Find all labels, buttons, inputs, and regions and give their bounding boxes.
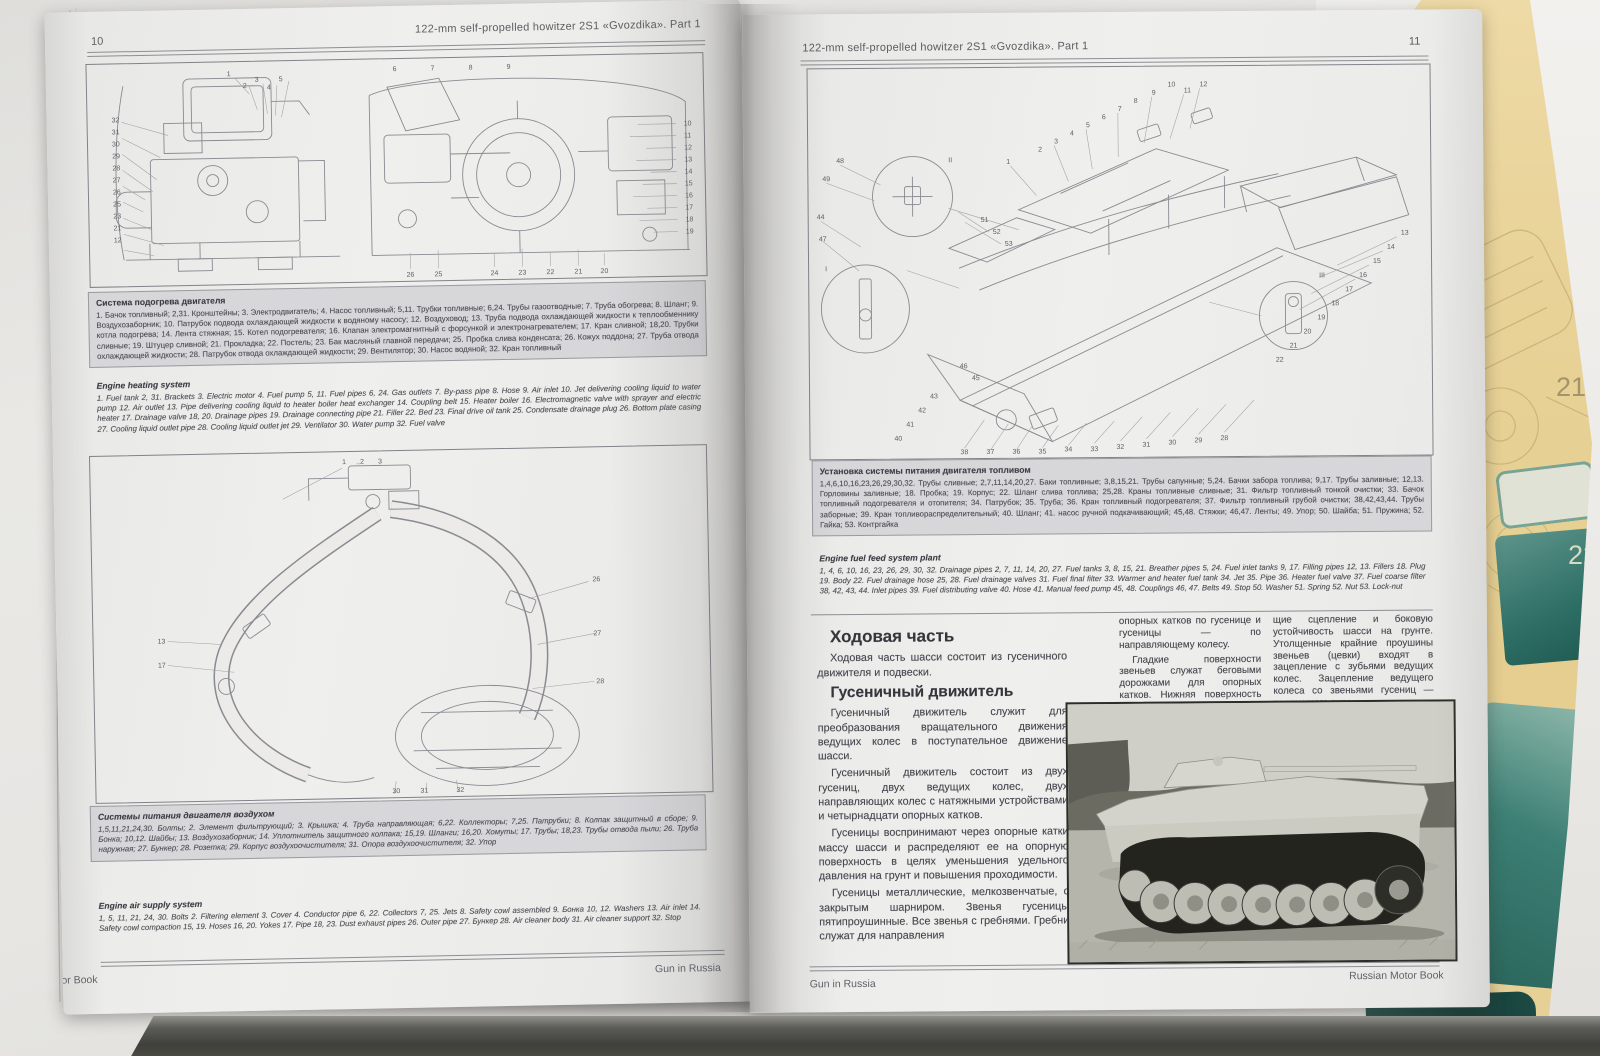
svg-text:34: 34 xyxy=(1064,446,1072,453)
svg-text:31: 31 xyxy=(420,788,428,795)
callout-number-layer: 303132 xyxy=(392,787,464,795)
caption-heating-en: Engine heating system 1. Fuel tank 2, 31… xyxy=(89,364,708,440)
caption-air-en: Engine air supply system 1, 5, 11, 21, 2… xyxy=(91,884,708,939)
svg-text:43: 43 xyxy=(930,393,938,400)
svg-text:36: 36 xyxy=(1013,449,1021,456)
callout-number-layer: 262728 xyxy=(592,576,604,685)
svg-text:23: 23 xyxy=(518,270,526,277)
svg-text:18: 18 xyxy=(1331,300,1339,307)
callout-number-layer: 121110987654321 xyxy=(1006,81,1209,166)
right-page-header-title: 122-mm self-propelled howitzer 2S1 «Gvoz… xyxy=(802,40,1088,54)
svg-text:15: 15 xyxy=(1373,258,1381,265)
svg-text:45: 45 xyxy=(972,375,980,382)
svg-text:12: 12 xyxy=(684,144,692,151)
paragraph: Гусеничный движитель состоит из двух гус… xyxy=(818,765,1068,824)
svg-text:2: 2 xyxy=(360,459,364,466)
svg-text:30: 30 xyxy=(392,788,400,795)
svg-text:14: 14 xyxy=(685,168,693,175)
svg-text:22: 22 xyxy=(1276,357,1284,364)
svg-text:1: 1 xyxy=(1006,159,1010,166)
svg-text:49: 49 xyxy=(822,176,830,183)
svg-text:2: 2 xyxy=(1038,147,1042,154)
svg-text:28: 28 xyxy=(596,678,604,685)
svg-text:17: 17 xyxy=(158,663,166,670)
left-footer-series: Gun in Russia xyxy=(655,962,721,975)
svg-text:46: 46 xyxy=(960,363,968,370)
caption-fuel-ru: Установка системы питания двигателя топл… xyxy=(812,456,1433,537)
callout-number-layer: 1317 xyxy=(157,639,165,670)
svg-text:18: 18 xyxy=(685,216,693,223)
left-page-header-title: 122-mm self-propelled howitzer 2S1 «Gvoz… xyxy=(415,18,701,35)
svg-text:29: 29 xyxy=(1194,437,1202,444)
left-page-number: 10 xyxy=(91,36,103,48)
svg-text:3: 3 xyxy=(255,77,259,84)
caption-fuel-en: Engine fuel feed system plant 1, 4, 6, 1… xyxy=(812,544,1432,602)
svg-text:26: 26 xyxy=(592,576,600,583)
paragraph: Гусеничный движитель служит для преобраз… xyxy=(818,705,1068,764)
section-title-running-gear: Ходовая часть xyxy=(817,624,1067,648)
svg-text:7: 7 xyxy=(431,65,435,72)
svg-text:20: 20 xyxy=(600,268,608,275)
caption-fuel-ru-body: 1,4,6,10,16,23,26,29,30,32. Трубы сливны… xyxy=(820,475,1424,529)
cover-artwork-light xyxy=(1495,460,1599,530)
svg-text:3: 3 xyxy=(378,458,382,465)
svg-text:26: 26 xyxy=(406,272,414,279)
svg-text:41: 41 xyxy=(906,422,914,429)
svg-text:16: 16 xyxy=(1359,272,1367,279)
svg-text:27: 27 xyxy=(593,630,601,637)
cover-figure-number-21: 21 xyxy=(1556,372,1586,403)
svg-text:13: 13 xyxy=(684,156,692,163)
callout-number-layer: 6789 xyxy=(393,64,511,73)
svg-text:4: 4 xyxy=(1070,130,1074,137)
callout-number-layer: 10111213141516171819 xyxy=(684,120,694,235)
svg-text:5: 5 xyxy=(279,76,283,83)
svg-text:12: 12 xyxy=(1200,81,1208,88)
callout-number-layer: 123 xyxy=(342,458,382,466)
svg-text:6: 6 xyxy=(1102,114,1106,121)
paragraph: опорных катков по гусенице и гусеницы — … xyxy=(1119,615,1261,652)
svg-text:31: 31 xyxy=(1142,442,1150,449)
svg-text:9: 9 xyxy=(1152,90,1156,97)
svg-text:21: 21 xyxy=(114,225,122,232)
svg-text:44: 44 xyxy=(817,214,825,221)
svg-text:48: 48 xyxy=(836,158,844,165)
svg-text:16: 16 xyxy=(685,192,693,199)
svg-text:13: 13 xyxy=(157,639,165,646)
right-page: 122-mm self-propelled howitzer 2S1 «Gvoz… xyxy=(742,9,1490,1013)
section-title-track-unit: Гусеничный движитель xyxy=(817,681,1067,703)
svg-text:21: 21 xyxy=(574,268,582,275)
svg-text:52: 52 xyxy=(993,229,1001,236)
paragraph: Гусеницы воспринимают через опорные катк… xyxy=(818,825,1068,884)
svg-text:32: 32 xyxy=(1116,444,1124,451)
svg-text:40: 40 xyxy=(894,436,902,443)
svg-text:25: 25 xyxy=(434,271,442,278)
right-footer-rule xyxy=(810,961,1440,971)
svg-text:32: 32 xyxy=(111,117,119,124)
howitzer-photo xyxy=(1066,699,1458,964)
svg-text:3: 3 xyxy=(1054,138,1058,145)
engine-heating-diagram: 12345 3231302928272625232112 6789 101112… xyxy=(85,52,707,288)
svg-text:32: 32 xyxy=(456,787,464,794)
svg-text:26: 26 xyxy=(113,189,121,196)
svg-text:7: 7 xyxy=(1118,106,1122,113)
svg-text:4: 4 xyxy=(267,84,271,91)
callout-number-layer: IIIIII xyxy=(824,154,1325,283)
svg-text:51: 51 xyxy=(981,217,989,224)
svg-text:25: 25 xyxy=(113,201,121,208)
paragraph: Ходовая часть шасси состоит из гусенично… xyxy=(817,650,1067,680)
svg-text:III: III xyxy=(1319,272,1325,279)
svg-text:37: 37 xyxy=(987,449,995,456)
svg-text:15: 15 xyxy=(685,180,693,187)
svg-text:23: 23 xyxy=(113,213,121,220)
svg-text:19: 19 xyxy=(686,228,694,235)
svg-text:13: 13 xyxy=(1401,230,1409,237)
svg-text:42: 42 xyxy=(918,407,926,414)
svg-text:11: 11 xyxy=(1184,87,1191,94)
svg-text:II: II xyxy=(948,157,952,164)
air-supply-diagram: 123 262728 1317 303132 xyxy=(89,444,714,804)
svg-text:5: 5 xyxy=(1086,122,1090,129)
svg-text:21: 21 xyxy=(1290,343,1298,350)
svg-text:17: 17 xyxy=(1345,286,1353,293)
fuel-system-diagram: 121110987654321 13141516171819202122 383… xyxy=(807,64,1434,461)
text-column-3: щие сцепление и боковую устойчивость шас… xyxy=(1273,614,1434,713)
svg-text:53: 53 xyxy=(1005,241,1013,248)
svg-text:24: 24 xyxy=(490,270,498,277)
callout-number-layer: 3837363534333231302928 xyxy=(960,435,1228,456)
svg-text:14: 14 xyxy=(1387,244,1395,251)
table-edge-band xyxy=(0,1016,1600,1056)
svg-text:19: 19 xyxy=(1317,314,1325,321)
left-footer-rule xyxy=(101,950,725,967)
svg-text:9: 9 xyxy=(507,64,511,71)
svg-text:11: 11 xyxy=(684,132,692,139)
svg-text:10: 10 xyxy=(684,120,692,127)
paragraph: Гусеницы металлические, мелкозвенчатые, … xyxy=(819,885,1069,944)
svg-text:I: I xyxy=(825,266,827,273)
svg-text:38: 38 xyxy=(961,449,969,456)
svg-text:35: 35 xyxy=(1039,449,1047,456)
right-footer-series: Gun in Russia xyxy=(810,978,876,991)
photo-of-open-book: 21 22 on 10 122-mm self-propelled howitz… xyxy=(0,0,1600,1056)
svg-text:28: 28 xyxy=(112,165,120,172)
svg-text:30: 30 xyxy=(1168,440,1176,447)
text-column-1: Ходовая часть Ходовая часть шасси состои… xyxy=(817,624,1070,946)
right-footer-imprint: Russian Motor Book xyxy=(1349,969,1444,982)
svg-text:8: 8 xyxy=(469,65,473,72)
svg-text:8: 8 xyxy=(1134,98,1138,105)
svg-text:2: 2 xyxy=(243,83,247,90)
svg-text:47: 47 xyxy=(819,236,827,243)
svg-text:33: 33 xyxy=(1090,446,1098,453)
right-page-number: 11 xyxy=(1409,36,1421,48)
svg-text:10: 10 xyxy=(1168,82,1176,89)
svg-text:29: 29 xyxy=(112,153,120,160)
caption-heating-ru: Система подогрева двигателя 1. Бачок топ… xyxy=(88,280,707,368)
svg-text:30: 30 xyxy=(112,141,120,148)
svg-text:22: 22 xyxy=(546,269,554,276)
paragraph: щие сцепление и боковую устойчивость шас… xyxy=(1273,614,1434,710)
caption-air-ru: Системы питания двигателя воздухом 1,5,1… xyxy=(90,794,707,861)
callout-number-layer: 26252423222120 xyxy=(406,268,608,279)
svg-text:17: 17 xyxy=(685,204,693,211)
svg-text:1: 1 xyxy=(227,71,231,78)
callout-number-layer: 12345 xyxy=(227,70,283,92)
caption-fuel-en-body: 1, 4, 6, 10, 16, 23, 26, 29, 30, 32. Dra… xyxy=(819,562,1425,596)
svg-text:6: 6 xyxy=(393,66,397,73)
svg-text:31: 31 xyxy=(112,129,120,136)
svg-text:28: 28 xyxy=(1220,435,1228,442)
caption-heating-ru-body: 1. Бачок топливный; 2,31. Кронштейны; 3.… xyxy=(96,299,699,360)
left-page: 10 122-mm self-propelled howitzer 2S1 «G… xyxy=(44,0,759,1015)
svg-text:27: 27 xyxy=(113,177,121,184)
svg-text:1: 1 xyxy=(342,459,346,466)
svg-text:20: 20 xyxy=(1304,328,1312,335)
svg-text:12: 12 xyxy=(114,237,122,244)
